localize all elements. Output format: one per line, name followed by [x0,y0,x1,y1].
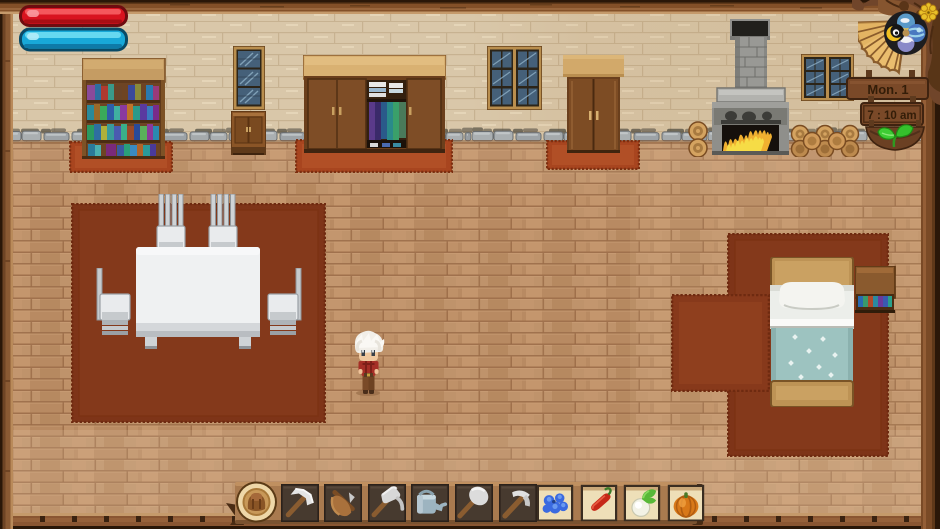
svg-text:Mon. 1: Mon. 1 [867,82,908,97]
